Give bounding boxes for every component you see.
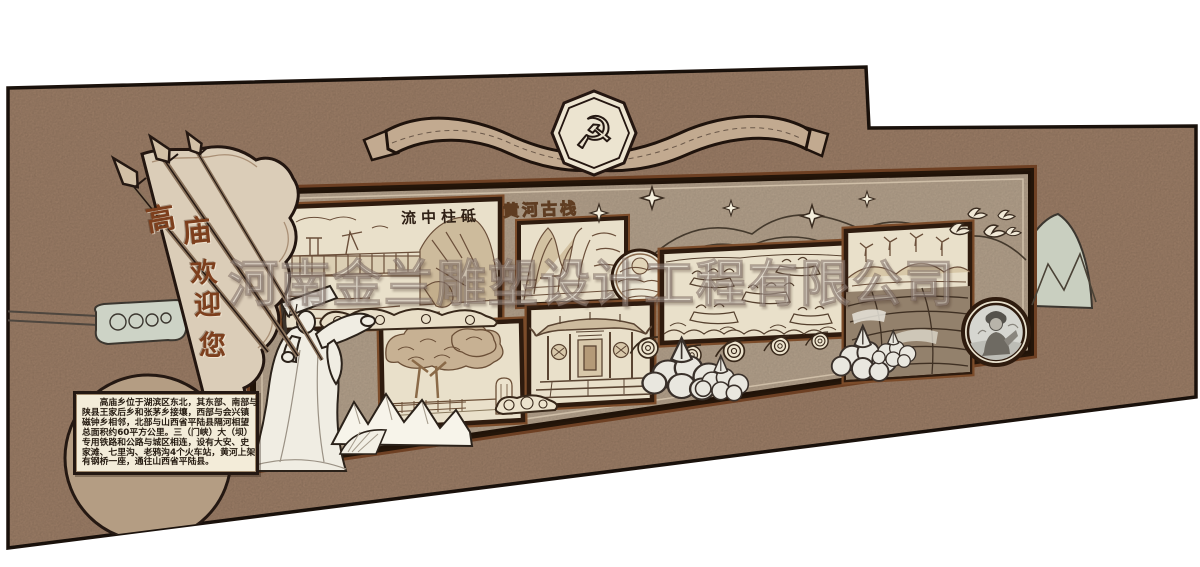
picture-boats (662, 243, 849, 343)
pennant-char: 您 (199, 324, 226, 363)
intro-line: 有钢桥一座，通往山西省平陆县。 (82, 458, 250, 468)
dam-picture-title: 流中柱砥 (401, 205, 482, 229)
picture-temple (528, 303, 654, 407)
pennant-char: 迎 (193, 283, 221, 323)
cultural-wall-design: 河南金兰雕塑设计工程有限公司 ☭ 流中柱砥 黄河古栈 高 庙 欢 迎 您 高庙乡… (0, 0, 1200, 567)
hammer-sickle-icon: ☭ (566, 105, 622, 161)
intro-text-box: 高庙乡位于湖滨区东北，其东部、南部与 陕县王家后乡和张茅乡接壤，西部与会兴镇 磁… (73, 391, 259, 475)
picture-cliff (519, 218, 626, 305)
cliff-picture-title: 黄河古栈 (503, 195, 580, 222)
medallion-portrait-photo (963, 299, 1029, 365)
pennant-char: 庙 (180, 207, 213, 252)
wall-artwork (0, 0, 1200, 567)
